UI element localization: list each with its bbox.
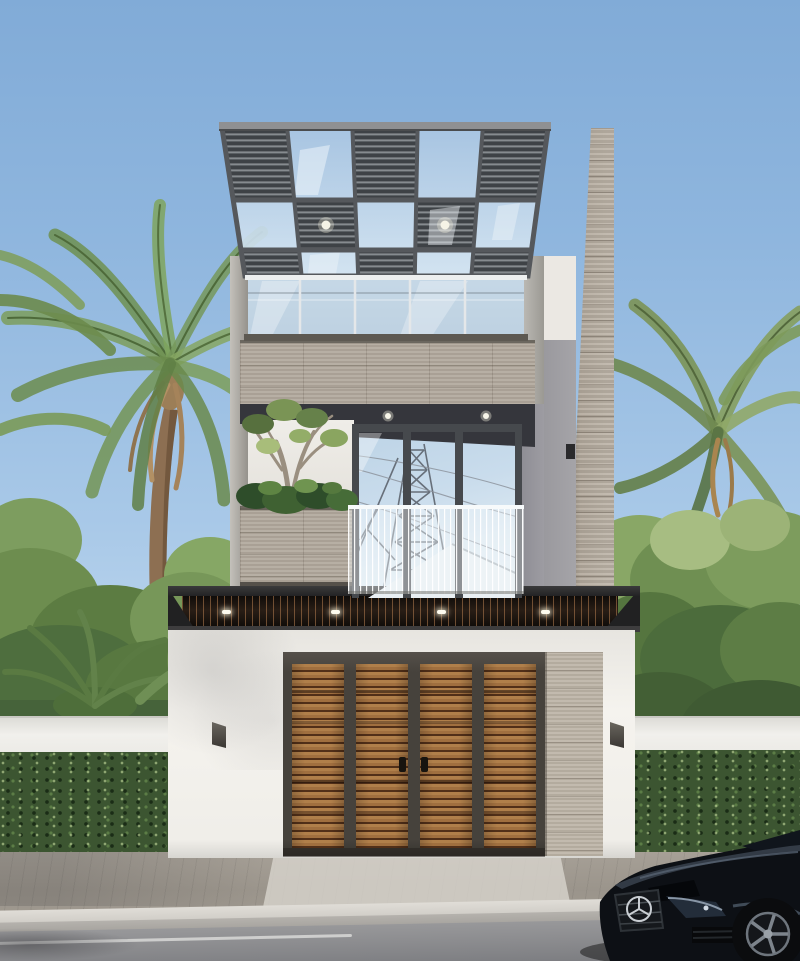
hub-cap bbox=[764, 930, 773, 939]
scene bbox=[0, 0, 800, 961]
car-grille bbox=[615, 890, 663, 931]
car-layer bbox=[0, 0, 800, 961]
black-coupe bbox=[580, 830, 800, 961]
